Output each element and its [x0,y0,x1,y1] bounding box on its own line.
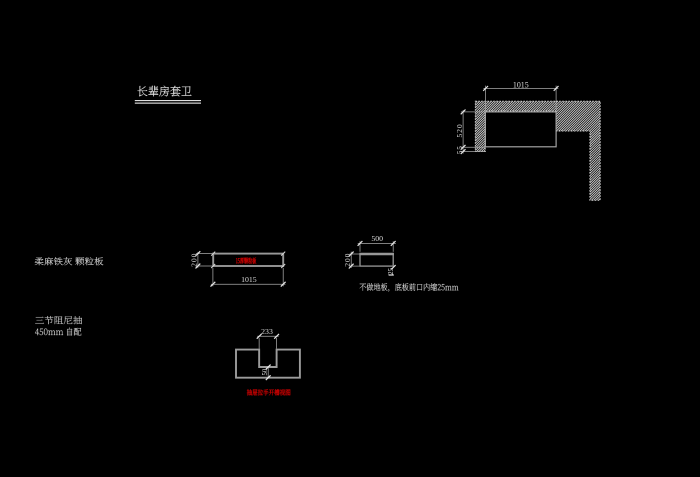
svg-text:1015: 1015 [513,81,529,90]
svg-text:1015: 1015 [241,275,257,284]
svg-text:25: 25 [388,267,395,274]
svg-text:233: 233 [261,327,273,336]
svg-text:520: 520 [455,123,464,137]
svg-text:200: 200 [343,253,352,267]
svg-text:200: 200 [190,253,199,267]
svg-text:55: 55 [456,145,464,154]
svg-text:50: 50 [262,368,269,375]
svg-text:500: 500 [371,234,383,243]
